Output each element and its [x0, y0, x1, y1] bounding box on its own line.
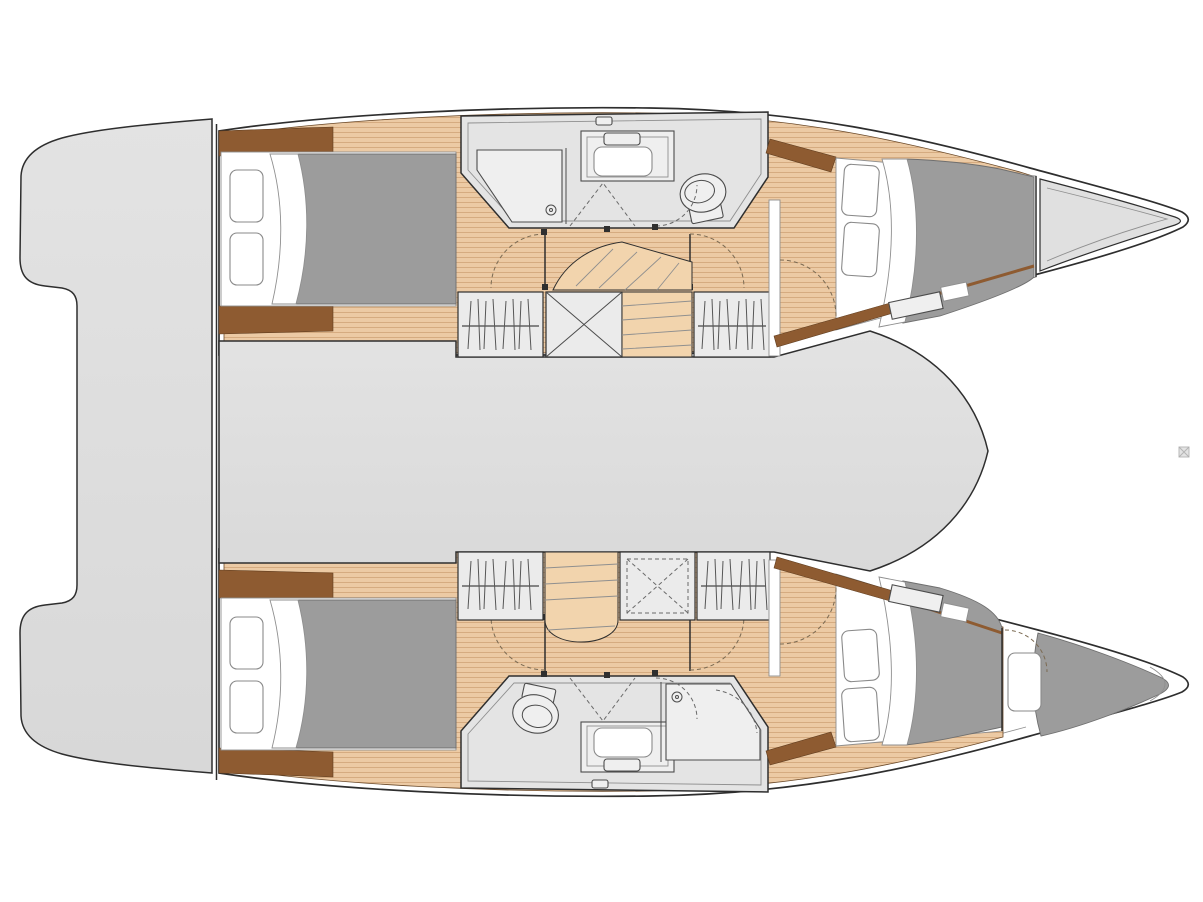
catamaran-floor-plan	[0, 0, 1203, 902]
stbd-sink-basin	[594, 728, 652, 757]
starboard-staircase	[545, 552, 618, 642]
port-deck-fitting	[596, 117, 612, 125]
stbd-fwd-pillow-1	[841, 629, 879, 682]
door-post	[542, 284, 548, 290]
door-post	[652, 224, 658, 230]
stbd-fwd-pillow-2	[841, 687, 880, 742]
stbd-faucet	[604, 759, 640, 771]
port-cabin-partition	[769, 200, 780, 356]
stbd-aft-headboard-shelf	[219, 748, 333, 777]
port-aft-pillow-1	[230, 170, 263, 222]
port-aft-foot-shelf	[219, 306, 333, 334]
port-fwd-pillow-2	[841, 222, 880, 277]
port-fwd-pillow-1	[841, 164, 879, 217]
starboard-head	[461, 676, 768, 792]
port-aft-duvet	[294, 154, 456, 304]
bow-berth-pillow	[1008, 653, 1041, 711]
port-aft-cabin	[219, 127, 456, 334]
starboard-aft-cabin	[219, 570, 456, 777]
port-sink-basin	[594, 147, 652, 176]
stbd-aft-pillow-1	[230, 617, 263, 669]
stbd-deck-fitting	[592, 780, 608, 788]
cockpit-deck	[20, 119, 212, 773]
door-post	[652, 670, 658, 676]
door-post	[604, 226, 610, 232]
bow-fitting-mark	[1179, 447, 1189, 457]
aft-cockpit	[20, 119, 212, 773]
stbd-aft-duvet	[294, 600, 456, 748]
door-post	[541, 229, 547, 235]
port-head	[461, 112, 768, 228]
stbd-storage-locker	[620, 552, 695, 620]
door-post	[541, 671, 547, 677]
door-post	[604, 672, 610, 678]
port-aft-pillow-2	[230, 233, 263, 285]
saloon-bridgedeck	[219, 331, 988, 571]
stbd-aft-pillow-2	[230, 681, 263, 733]
floor-plan-drawing	[0, 0, 1203, 902]
saloon	[219, 331, 988, 571]
stbd-cabin-partition	[769, 560, 780, 676]
port-faucet	[604, 133, 640, 145]
stbd-aft-foot-shelf	[219, 570, 333, 598]
